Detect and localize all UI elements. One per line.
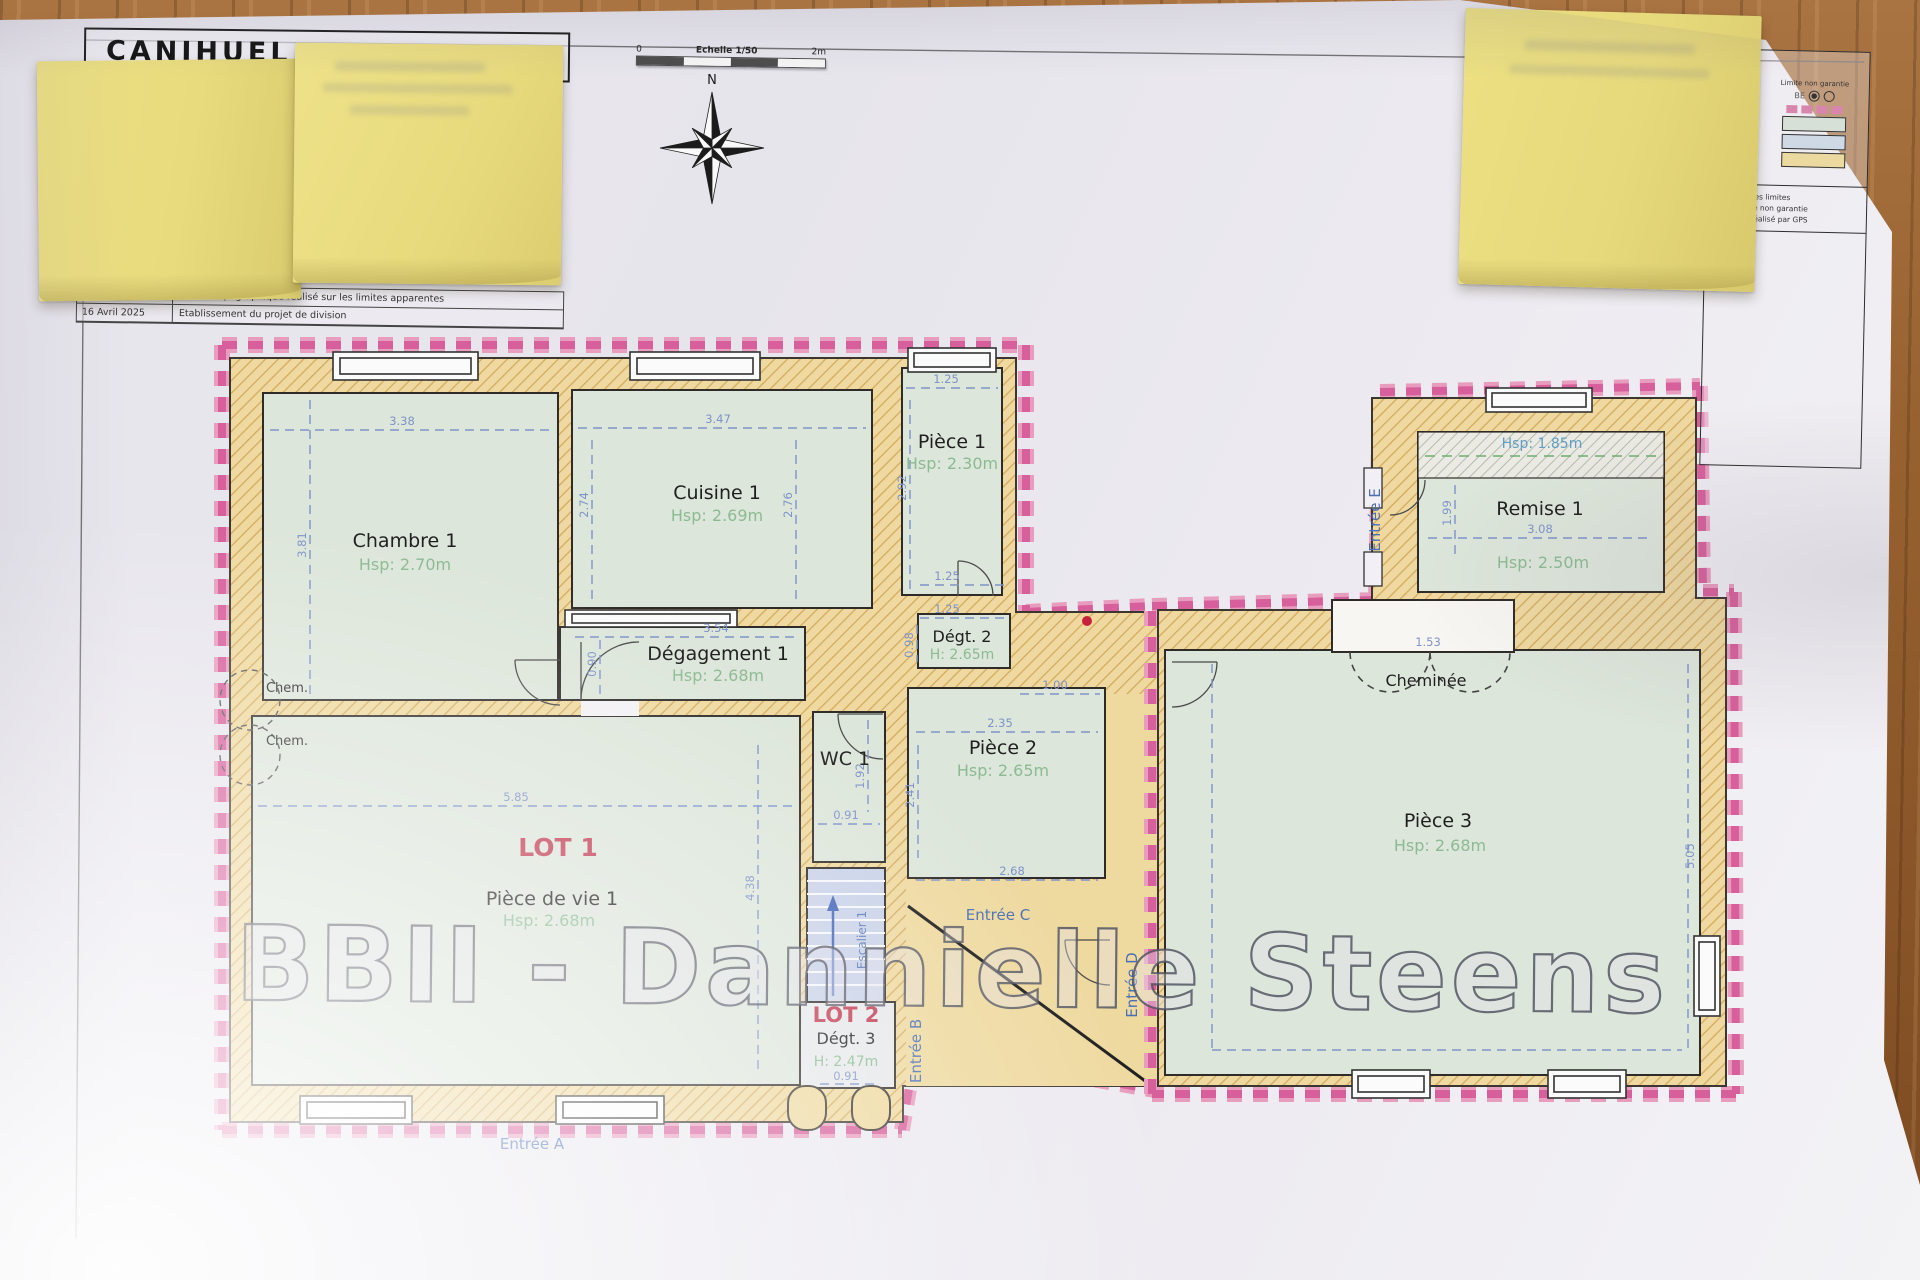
legend-swatch-wall [1781, 152, 1845, 168]
label-piece3-h: Hsp: 2.68m [1394, 836, 1486, 855]
sticky-note-curl [293, 257, 561, 286]
legend-right-column: Limite non garantie BE [1763, 79, 1865, 169]
legend-boundary-sample [1764, 104, 1864, 114]
dim-chambre-h: 3.81 [295, 532, 309, 558]
scale-end: 2m [811, 47, 826, 57]
scale-bar: 0 Echelle 1/50 2m [636, 45, 826, 69]
sticky-note [1458, 8, 1762, 292]
dim-chambre-w: 3.38 [389, 414, 415, 428]
label-remise1-h: Hsp: 2.50m [1497, 553, 1589, 572]
dim-degt3-w: 0.91 [833, 1069, 859, 1083]
label-degt2: Dégt. 2 [933, 627, 992, 646]
label-cuisine1-h: Hsp: 2.69m [671, 506, 763, 525]
legend-swatch-stairs [1781, 134, 1845, 150]
pillar [852, 1086, 890, 1130]
label-cuisine1: Cuisine 1 [673, 482, 761, 504]
label-remise1: Remise 1 [1496, 498, 1584, 520]
dim-corridor-w: 3.54 [703, 621, 729, 635]
photo-of-floor-plan: Escalier 1 [0, 0, 1920, 1280]
dim-p1-w: 1.25 [933, 372, 959, 386]
dim-p1-h: 2.92 [895, 475, 909, 501]
label-cheminee: Cheminée [1385, 671, 1466, 690]
legend-limit-note: Limite non garantie [1765, 79, 1865, 89]
label-wc1: WC 1 [820, 748, 870, 770]
label-entree-a: Entrée A [500, 1135, 565, 1153]
dim-p3-h: 5.05 [1683, 843, 1697, 869]
label-degt3: Dégt. 3 [817, 1029, 876, 1048]
compass-north-label: N [707, 73, 717, 88]
label-degt3-h: H: 2.47m [814, 1054, 879, 1070]
label-chem-2: Chem. [266, 734, 308, 749]
revision-date: 16 Avril 2025 [77, 304, 173, 322]
left-building: Escalier 1 [220, 345, 1158, 1153]
survey-point-icon [1809, 91, 1820, 102]
dim-pdv-h: 4.38 [743, 875, 757, 901]
dim-degt2-w1: 1.25 [934, 569, 960, 583]
sticky-note [293, 43, 563, 286]
ink-bleed-mark [1525, 40, 1695, 55]
survey-point-icon [1824, 91, 1835, 102]
dim-cuisine-hr: 2.76 [781, 492, 795, 518]
label-remise-upper-h: Hsp: 1.85m [1502, 436, 1583, 452]
ink-bleed-mark [1509, 64, 1709, 79]
room-piece1 [902, 368, 1002, 595]
scale-label: Echelle 1/50 [696, 45, 758, 56]
room-wc1 [813, 712, 885, 862]
sticky-note-curl [39, 273, 301, 302]
dim-p2-h: 2.41 [903, 782, 917, 808]
dim-p3-a: 1.53 [1415, 635, 1441, 649]
ink-bleed-mark [323, 83, 513, 94]
dim-remise-w: 3.08 [1527, 522, 1553, 536]
dim-degt2-w2: 1.25 [934, 602, 960, 616]
label-degt2-h: H: 2.65m [930, 647, 995, 663]
label-entree-e: Entrée E [1366, 488, 1384, 551]
legend-swatch-room [1782, 116, 1846, 132]
label-chambre1: Chambre 1 [353, 530, 458, 552]
compass-rose: N [660, 73, 764, 204]
label-piece3: Pièce 3 [1404, 810, 1472, 832]
label-piece2: Pièce 2 [969, 737, 1037, 759]
dim-pdv-w: 5.85 [503, 790, 529, 804]
label-degagement1: Dégagement 1 [647, 643, 789, 665]
legend-marker-label: BE [1794, 91, 1805, 100]
dim-degt2-h: 0.98 [902, 632, 916, 658]
red-survey-point [1082, 616, 1092, 626]
dim-wc-w: 0.91 [833, 808, 859, 822]
watermark-text: BBII - Dannielle Steens [235, 903, 1670, 1038]
label-piece2-h: Hsp: 2.65m [957, 761, 1049, 780]
dim-p2-w1: 1.00 [1042, 678, 1068, 692]
label-chem-1: Chem. [266, 681, 308, 696]
dim-cuisine-hl: 2.74 [577, 492, 591, 518]
dim-p2-w2: 2.35 [987, 716, 1013, 730]
dim-remise-h: 1.99 [1440, 500, 1454, 526]
dim-cuisine-w: 3.47 [705, 412, 731, 426]
sticky-note [37, 59, 301, 302]
label-chambre1-h: Hsp: 2.70m [359, 555, 451, 574]
label-piece1-h: Hsp: 2.30m [906, 454, 998, 473]
dim-p2-w3: 2.68 [999, 864, 1025, 878]
pillar [788, 1086, 826, 1130]
ink-bleed-mark [335, 61, 485, 73]
label-lot1: LOT 1 [518, 833, 597, 862]
label-degagement1-h: Hsp: 2.68m [672, 666, 764, 685]
ink-bleed-mark [350, 105, 470, 115]
label-piece1: Pièce 1 [918, 431, 986, 453]
scale-zero: 0 [636, 45, 642, 55]
dim-corridor-h: 0.90 [585, 651, 599, 677]
